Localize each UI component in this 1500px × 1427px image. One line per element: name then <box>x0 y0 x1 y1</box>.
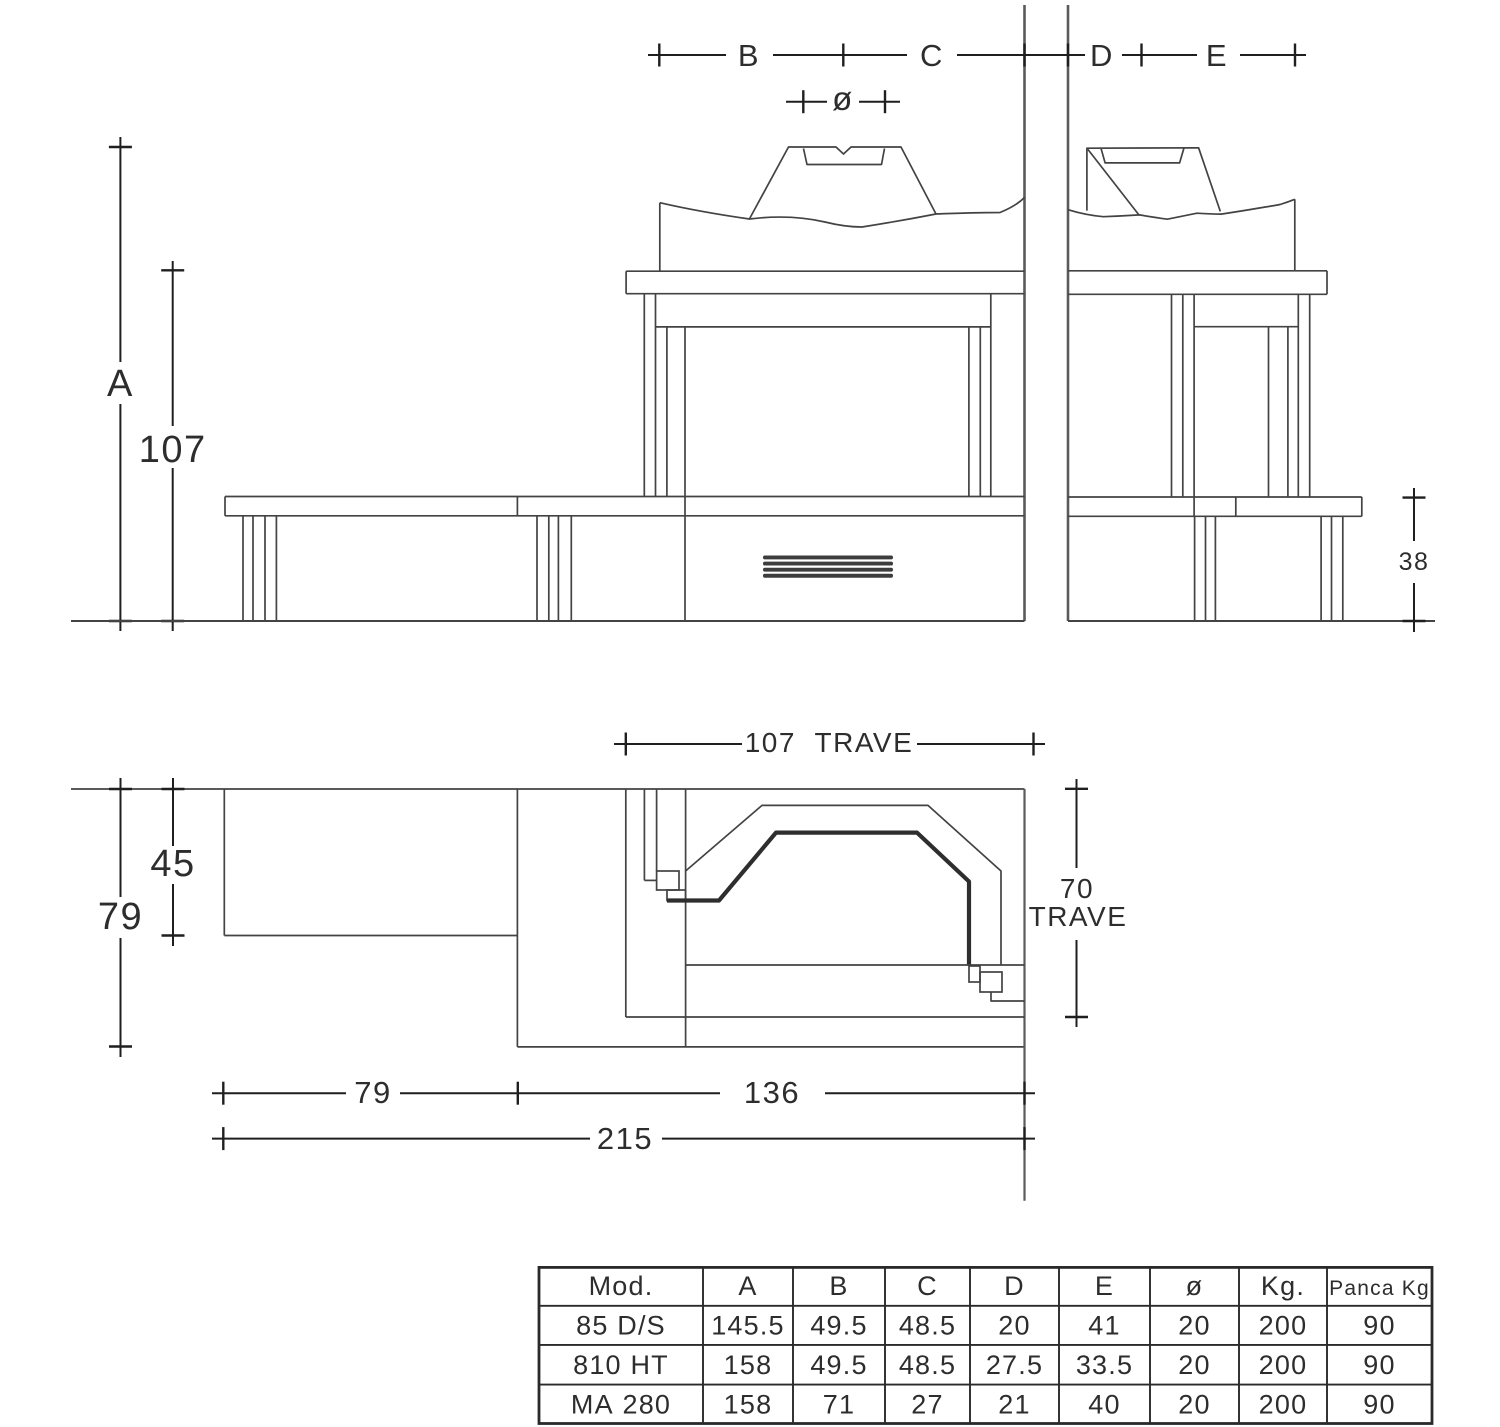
svg-text:38: 38 <box>1399 548 1430 576</box>
svg-text:79: 79 <box>98 896 143 938</box>
svg-text:85 D/S: 85 D/S <box>576 1311 666 1341</box>
svg-text:E: E <box>1095 1271 1114 1301</box>
svg-text:200: 200 <box>1259 1350 1308 1380</box>
svg-text:E: E <box>1206 38 1228 73</box>
svg-text:D: D <box>1090 38 1114 73</box>
svg-text:Kg.: Kg. <box>1261 1271 1305 1301</box>
svg-text:136: 136 <box>744 1075 800 1110</box>
svg-text:ø: ø <box>1186 1271 1204 1301</box>
svg-text:158: 158 <box>724 1350 773 1380</box>
svg-text:21: 21 <box>998 1389 1030 1419</box>
svg-text:70: 70 <box>1060 873 1094 904</box>
svg-text:20: 20 <box>1178 1311 1210 1341</box>
svg-text:40: 40 <box>1088 1389 1120 1419</box>
svg-text:41: 41 <box>1088 1311 1120 1341</box>
svg-text:B: B <box>829 1271 848 1301</box>
svg-text:810 HT: 810 HT <box>573 1350 669 1380</box>
svg-text:A: A <box>738 1271 757 1301</box>
svg-text:45: 45 <box>150 843 195 885</box>
svg-text:33.5: 33.5 <box>1076 1350 1133 1380</box>
svg-text:27.5: 27.5 <box>986 1350 1043 1380</box>
svg-text:C: C <box>920 38 944 73</box>
svg-text:107 TRAVE: 107 TRAVE <box>745 727 914 758</box>
svg-text:79: 79 <box>354 1075 391 1110</box>
svg-text:49.5: 49.5 <box>810 1350 867 1380</box>
svg-text:215: 215 <box>597 1121 653 1156</box>
svg-text:20: 20 <box>1178 1389 1210 1419</box>
svg-text:90: 90 <box>1363 1350 1395 1380</box>
svg-text:27: 27 <box>911 1389 943 1419</box>
svg-text:D: D <box>1004 1271 1025 1301</box>
svg-text:Panca Kg: Panca Kg <box>1329 1277 1430 1300</box>
svg-text:49.5: 49.5 <box>810 1311 867 1341</box>
svg-text:C: C <box>917 1271 938 1301</box>
svg-text:20: 20 <box>998 1311 1030 1341</box>
svg-text:200: 200 <box>1259 1389 1308 1419</box>
svg-text:MA 280: MA 280 <box>571 1389 671 1419</box>
svg-text:90: 90 <box>1363 1389 1395 1419</box>
svg-text:Mod.: Mod. <box>589 1271 654 1301</box>
svg-text:145.5: 145.5 <box>711 1311 785 1341</box>
svg-text:48.5: 48.5 <box>899 1311 956 1341</box>
svg-text:48.5: 48.5 <box>899 1350 956 1380</box>
svg-text:90: 90 <box>1363 1311 1395 1341</box>
svg-text:107: 107 <box>139 429 207 471</box>
svg-text:71: 71 <box>823 1389 855 1419</box>
svg-text:A: A <box>107 363 134 405</box>
svg-text:20: 20 <box>1178 1350 1210 1380</box>
svg-text:158: 158 <box>724 1389 773 1419</box>
svg-text:200: 200 <box>1259 1311 1308 1341</box>
svg-text:B: B <box>738 38 760 73</box>
svg-text:TRAVE: TRAVE <box>1029 901 1128 932</box>
svg-text:ø: ø <box>832 80 854 117</box>
